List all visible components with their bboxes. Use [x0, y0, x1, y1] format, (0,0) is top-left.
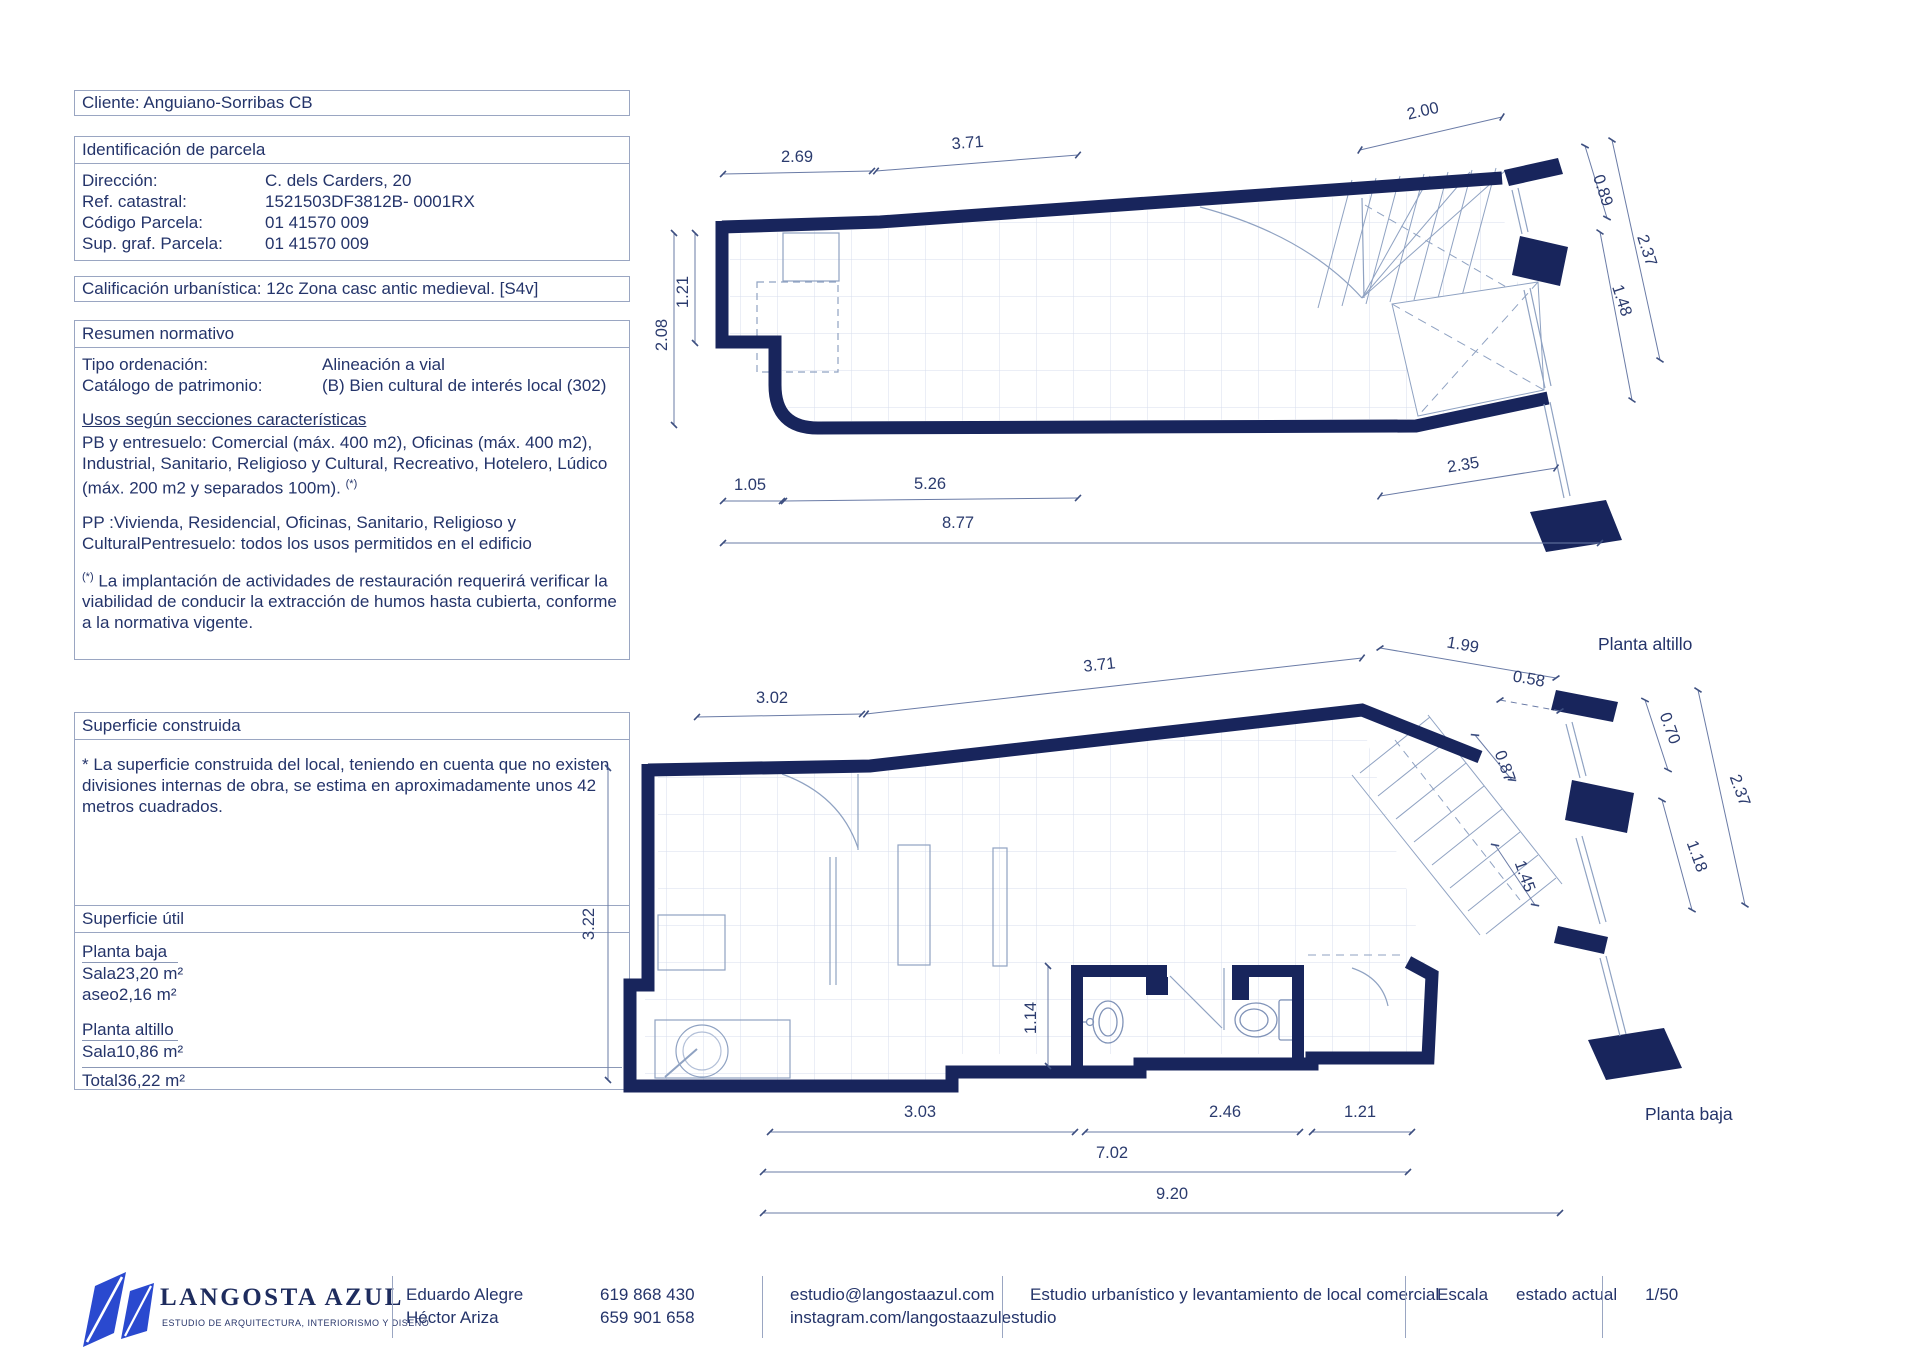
dim-label: 1.21 — [1344, 1103, 1376, 1121]
dim-label: 9.20 — [1156, 1185, 1188, 1203]
row-label: Código Parcela: — [82, 212, 265, 233]
footer-divider — [1602, 1276, 1603, 1338]
dim-label: 3.22 — [580, 908, 598, 940]
baja-plan-label: Planta baja — [1645, 1104, 1733, 1124]
altillo-plan: 2.69 3.71 2.00 1.21 2.08 1.05 5.26 2.35 … — [653, 99, 1692, 654]
floorplan-drawing: 2.69 3.71 2.00 1.21 2.08 1.05 5.26 2.35 … — [560, 60, 1920, 1300]
normative-row: Tipo ordenación:Alineación a vial — [82, 354, 622, 375]
usable-area-box: Superficie útil Planta baja Sala23,20 m²… — [74, 905, 630, 1090]
client-box: Cliente: Anguiano-Sorribas CB — [74, 90, 630, 116]
dim-label: 1.45 — [1511, 858, 1539, 894]
scale-block: Escala estado actual 1/50 — [1437, 1283, 1678, 1306]
built-area-note: * La superficie construida del local, te… — [75, 740, 629, 823]
dim-label: 2.37 — [1726, 772, 1754, 808]
footnote-paragraph: (*) La implantación de actividades de re… — [82, 567, 622, 634]
built-area-title: Superficie construida — [75, 713, 629, 740]
total-label: Total — [82, 1071, 118, 1090]
dim-label: 0.89 — [1589, 172, 1616, 208]
footer-divider — [1405, 1276, 1406, 1338]
instagram-link[interactable]: instagram.com/langostaazulestudio — [790, 1306, 1056, 1329]
dim-label: 0.58 — [1511, 667, 1546, 690]
row-value: 01 41570 009 — [265, 233, 369, 254]
normative-row: Catálogo de patrimonio:(B) Bien cultural… — [82, 375, 622, 396]
group-planta-altillo: Planta altillo — [82, 1019, 178, 1041]
row-label: Sup. graf. Parcela: — [82, 233, 265, 254]
footer-contact: estudio@langostaazul.com instagram.com/l… — [790, 1283, 1056, 1329]
normative-title: Resumen normativo — [75, 321, 629, 348]
studio-tagline: ESTUDIO DE ARQUITECTURA, INTERIORISMO Y … — [162, 1318, 429, 1328]
row-value: 1521503DF3812B- 0001RX — [265, 191, 475, 212]
baja-facade-windows — [1566, 722, 1626, 1036]
built-area-box: Superficie construida * La superficie co… — [74, 712, 630, 906]
urban-classification-box: Calificación urbanística: 12c Zona casc … — [74, 276, 630, 302]
email-link[interactable]: estudio@langostaazul.com — [790, 1283, 1056, 1306]
dim-label: 2.08 — [653, 319, 671, 351]
row-label: Sala — [82, 1042, 116, 1061]
dim-label: 3.71 — [951, 133, 984, 153]
row-value: Alineación a vial — [322, 354, 445, 375]
scale-value: 1/50 — [1645, 1283, 1678, 1306]
footer-divider — [392, 1276, 393, 1338]
altillo-plan-label: Planta altillo — [1598, 634, 1692, 654]
parcel-row: Código Parcela:01 41570 009 — [82, 212, 622, 233]
dim-label: 3.71 — [1082, 654, 1116, 676]
pp-paragraph: PP :Vivienda, Residencial, Oficinas, San… — [82, 512, 622, 554]
footnote-mark: (*) — [82, 571, 94, 583]
dim-label: 2.00 — [1405, 99, 1440, 124]
footer-divider — [762, 1276, 763, 1338]
dim-label: 5.26 — [914, 475, 946, 493]
footer-phones: 619 868 430 659 901 658 — [600, 1283, 695, 1329]
team-member: Eduardo Alegre — [406, 1283, 523, 1306]
urban-classification: Calificación urbanística: 12c Zona casc … — [75, 277, 629, 301]
parcel-id-rows: Dirección:C. dels Carders, 20 Ref. catas… — [75, 164, 629, 260]
usos-title: Usos según secciones características — [82, 409, 622, 430]
dim-label: 2.35 — [1446, 454, 1481, 477]
team-member: Héctor Ariza — [406, 1306, 523, 1329]
row-label: Ref. catastral: — [82, 191, 265, 212]
dim-label: 1.18 — [1683, 838, 1711, 874]
row-label: Catálogo de patrimonio: — [82, 375, 322, 396]
usable-area-title: Superficie útil — [75, 906, 629, 933]
normative-summary-box: Resumen normativo Tipo ordenación:Alinea… — [74, 320, 630, 660]
dim-label: 7.02 — [1096, 1144, 1128, 1162]
project-description: Estudio urbanístico y levantamiento de l… — [1030, 1283, 1439, 1306]
area-row: Sala10,86 m² — [82, 1041, 622, 1062]
area-row: aseo2,16 m² — [82, 984, 622, 1005]
phone-number: 659 901 658 — [600, 1306, 695, 1329]
parcel-id-title: Identificación de parcela — [75, 137, 629, 164]
footer-divider — [1002, 1276, 1003, 1338]
client-label: Cliente: Anguiano-Sorribas CB — [75, 91, 629, 115]
dim-label: 1.14 — [1022, 1002, 1040, 1034]
parcel-row: Ref. catastral:1521503DF3812B- 0001RX — [82, 191, 622, 212]
total-value: 36,22 m² — [118, 1071, 185, 1090]
row-value: C. dels Carders, 20 — [265, 170, 411, 191]
dim-label: 1.21 — [674, 276, 692, 308]
dim-label: 2.46 — [1209, 1103, 1241, 1121]
dim-label: 1.99 — [1445, 633, 1480, 656]
baja-plan: 3.02 3.71 1.99 0.58 3.22 1.14 0.87 1.45 … — [580, 633, 1754, 1213]
usos-footnote-mark: (*) — [346, 478, 358, 490]
scale-label: Escala — [1437, 1283, 1488, 1306]
dim-label: 3.02 — [756, 689, 788, 707]
dim-label: 2.37 — [1633, 232, 1660, 268]
parcel-row: Sup. graf. Parcela:01 41570 009 — [82, 233, 622, 254]
row-label: Sala — [82, 964, 116, 983]
row-label: Tipo ordenación: — [82, 354, 322, 375]
dim-label: 2.69 — [781, 148, 813, 166]
normative-body: Tipo ordenación:Alineación a vial Catálo… — [75, 348, 629, 639]
group-planta-baja: Planta baja — [82, 941, 178, 963]
footnote-text: La implantación de actividades de restau… — [82, 571, 617, 632]
usos-paragraph: PB y entresuelo: Comercial (máx. 400 m2)… — [82, 432, 622, 499]
row-value: 01 41570 009 — [265, 212, 369, 233]
row-value: 2,16 m² — [119, 985, 177, 1004]
row-label: aseo — [82, 985, 119, 1004]
studio-name: LANGOSTA AZUL — [160, 1284, 404, 1312]
altillo-void — [1392, 282, 1544, 416]
parcel-row: Dirección:C. dels Carders, 20 — [82, 170, 622, 191]
row-label: Dirección: — [82, 170, 265, 191]
dim-label: 0.87 — [1491, 748, 1519, 784]
phone-number: 619 868 430 — [600, 1283, 695, 1306]
total-row: Total36,22 m² — [82, 1067, 622, 1091]
dim-label: 8.77 — [942, 514, 974, 532]
dim-label: 3.03 — [904, 1103, 936, 1121]
area-row: Sala23,20 m² — [82, 963, 622, 984]
dim-label: 1.48 — [1608, 282, 1635, 318]
dim-label: 0.70 — [1656, 710, 1684, 746]
dim-label: 1.05 — [734, 476, 766, 494]
footer-team: Eduardo Alegre Héctor Ariza — [406, 1283, 523, 1329]
parcel-id-box: Identificación de parcela Dirección:C. d… — [74, 136, 630, 261]
row-value: 10,86 m² — [116, 1042, 183, 1061]
row-value: 23,20 m² — [116, 964, 183, 983]
